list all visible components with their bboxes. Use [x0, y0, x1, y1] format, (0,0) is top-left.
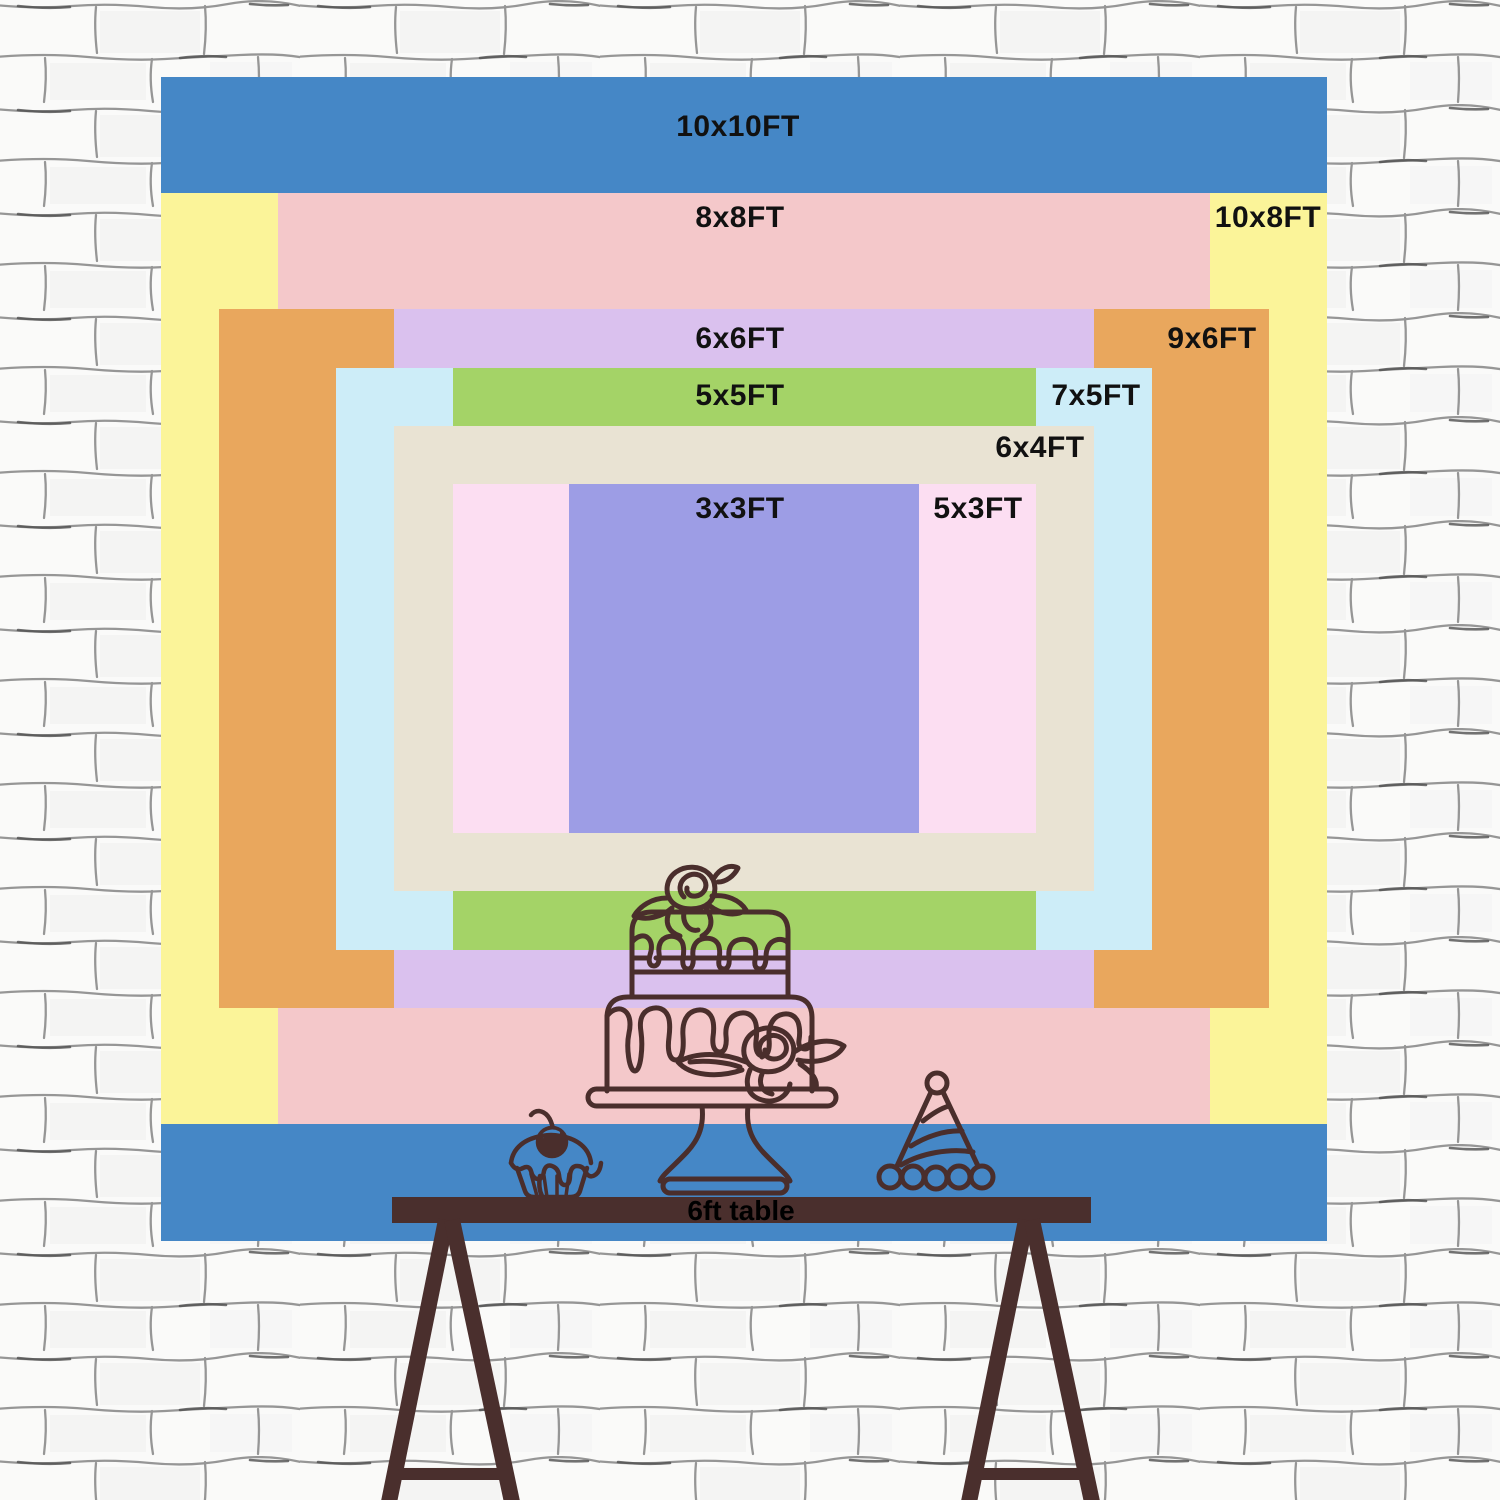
table-size-label: 6ft table	[687, 1195, 794, 1227]
table-left-trestle	[389, 1220, 512, 1500]
trestle-table	[389, 1197, 1092, 1500]
backdrop-size-chart-image: 10x10FT10x8FT8x8FT9x6FT6x6FT7x5FT5x5FT6x…	[0, 0, 1500, 1500]
two-tier-cake-icon	[588, 866, 844, 1193]
table-right-trestle	[969, 1220, 1092, 1500]
table-and-cake-artwork	[0, 0, 1500, 1500]
cupcake-icon	[511, 1111, 601, 1197]
party-hat-icon	[879, 1073, 993, 1189]
